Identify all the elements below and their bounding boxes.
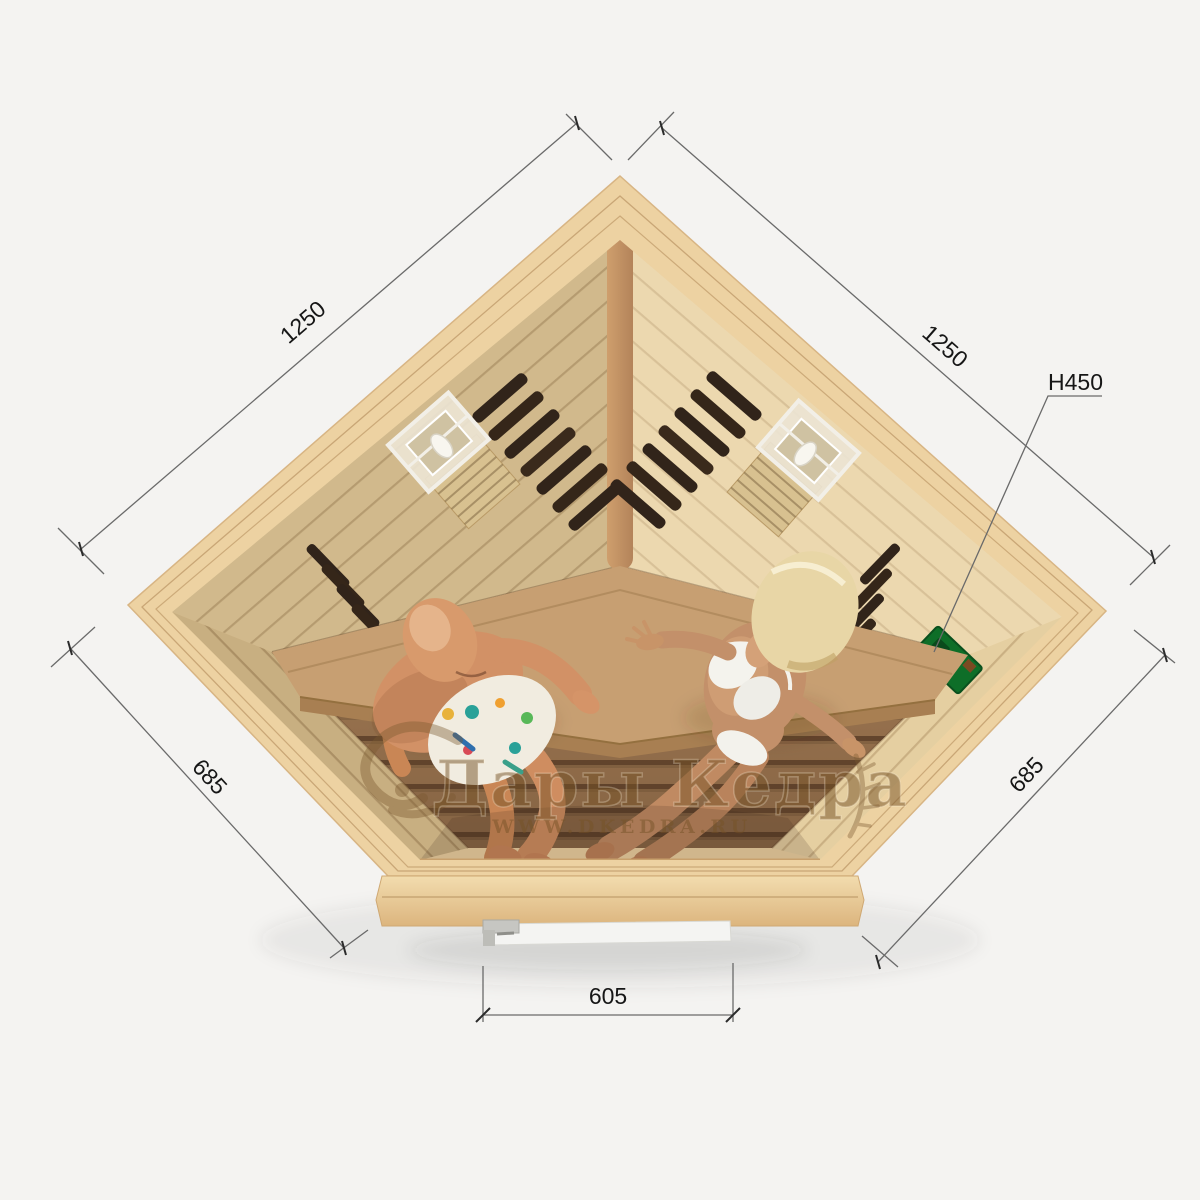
corner-post — [607, 238, 633, 570]
label-height: H450 — [1048, 369, 1103, 395]
shorts-dot — [465, 705, 479, 719]
shorts-dot — [442, 708, 454, 720]
watermark-url-text: WWW.DKEDRA.RU — [491, 816, 752, 838]
render-canvas: Дары Кедра WWW.DKEDRA.RU — [0, 0, 1200, 1200]
ext-line — [628, 112, 674, 160]
ext-line — [566, 114, 612, 160]
label-side-right: 685 — [1004, 752, 1049, 798]
door-top-edge — [486, 921, 731, 945]
label-front-door: 605 — [589, 983, 627, 1009]
label-back-right: 1250 — [917, 319, 973, 372]
logo-dot — [395, 783, 409, 797]
shorts-dot — [495, 698, 505, 708]
door-handle-line — [497, 933, 514, 934]
label-back-left: 1250 — [275, 295, 331, 348]
ext-line — [1134, 630, 1175, 663]
door-handle-grip — [483, 930, 495, 946]
watermark-brand-text: Дары Кедра — [431, 747, 908, 822]
sauna-top-view-render: Дары Кедра WWW.DKEDRA.RU — [0, 0, 1200, 1200]
dim-tick — [1163, 648, 1167, 662]
ext-line — [51, 627, 95, 667]
ext-line — [1130, 545, 1170, 585]
label-side-left: 685 — [187, 754, 232, 800]
shorts-dot — [521, 712, 533, 724]
glass-front-door — [483, 920, 731, 946]
front-fascia — [376, 876, 864, 926]
